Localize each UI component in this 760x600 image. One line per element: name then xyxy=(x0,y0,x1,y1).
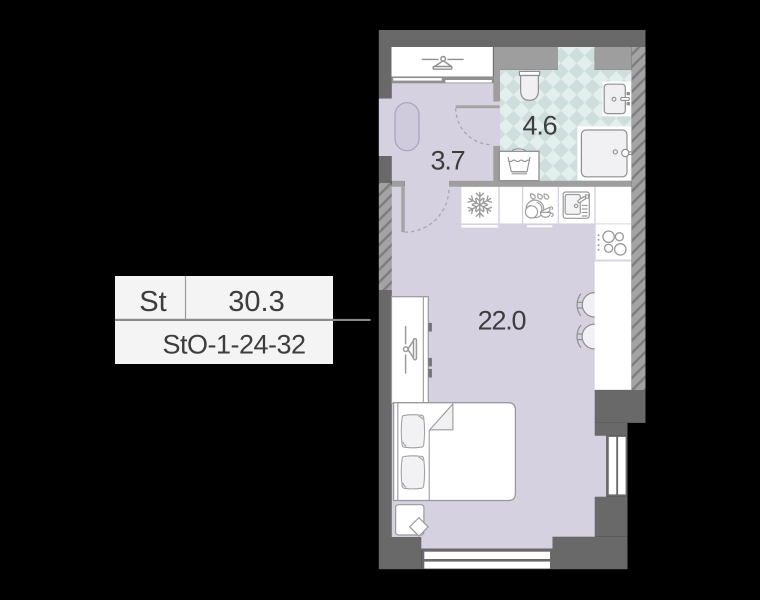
svg-text:4.6: 4.6 xyxy=(523,111,557,141)
svg-text:3.7: 3.7 xyxy=(431,146,465,176)
svg-text:St: St xyxy=(139,286,166,318)
svg-text:StO-1-24-32: StO-1-24-32 xyxy=(162,330,305,360)
svg-text:22.0: 22.0 xyxy=(478,306,526,336)
svg-text:30.3: 30.3 xyxy=(228,286,284,318)
